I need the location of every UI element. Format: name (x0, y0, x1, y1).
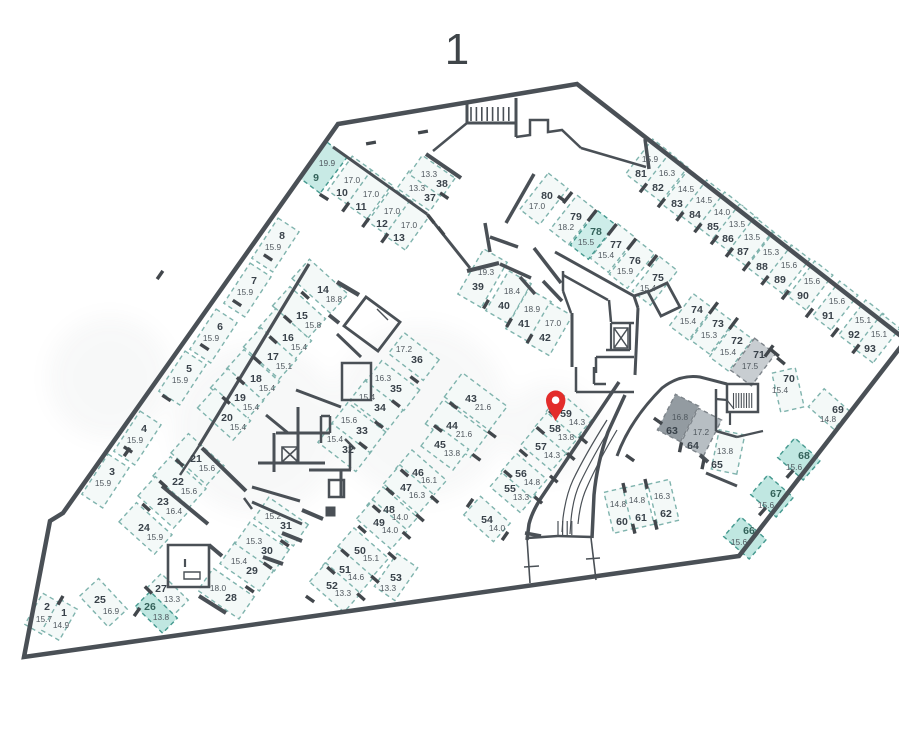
svg-text:11: 11 (355, 201, 366, 213)
svg-text:17.5: 17.5 (742, 361, 759, 371)
svg-text:16.4: 16.4 (166, 506, 183, 516)
svg-text:5: 5 (186, 363, 192, 375)
svg-text:15.6: 15.6 (781, 260, 798, 270)
svg-text:86: 86 (722, 233, 734, 245)
svg-text:82: 82 (652, 182, 664, 194)
svg-text:15.6: 15.6 (829, 296, 846, 306)
svg-text:15.6: 15.6 (181, 486, 198, 496)
svg-text:34: 34 (374, 402, 386, 414)
svg-text:15.4: 15.4 (230, 422, 247, 432)
svg-text:41: 41 (518, 318, 530, 330)
svg-text:14.5: 14.5 (696, 195, 713, 205)
svg-text:12: 12 (376, 218, 388, 230)
svg-text:13.3: 13.3 (421, 169, 438, 179)
svg-text:85: 85 (707, 221, 719, 233)
svg-text:60: 60 (616, 516, 628, 528)
svg-text:84: 84 (689, 209, 701, 221)
svg-text:39: 39 (472, 281, 484, 293)
svg-text:15.7: 15.7 (36, 614, 53, 624)
svg-text:38: 38 (436, 178, 448, 190)
svg-text:18.2: 18.2 (558, 222, 575, 232)
svg-text:1: 1 (445, 25, 469, 74)
svg-text:72: 72 (731, 335, 743, 347)
svg-text:14.8: 14.8 (629, 495, 646, 505)
svg-text:4: 4 (141, 423, 147, 435)
svg-text:15.3: 15.3 (763, 247, 780, 257)
svg-text:74: 74 (691, 304, 703, 316)
svg-text:19.3: 19.3 (478, 267, 495, 277)
svg-text:16.3: 16.3 (409, 490, 426, 500)
svg-text:15.8: 15.8 (305, 320, 322, 330)
svg-text:63: 63 (666, 425, 678, 437)
svg-text:15.9: 15.9 (265, 242, 282, 252)
svg-text:16.3: 16.3 (659, 168, 676, 178)
svg-text:17.0: 17.0 (384, 206, 401, 216)
svg-text:9: 9 (313, 172, 319, 184)
svg-text:13.3: 13.3 (335, 588, 352, 598)
svg-text:15.9: 15.9 (617, 266, 634, 276)
svg-text:62: 62 (660, 508, 672, 520)
svg-text:14.0: 14.0 (392, 512, 409, 522)
svg-text:15.4: 15.4 (720, 347, 737, 357)
svg-text:15.9: 15.9 (127, 435, 144, 445)
svg-text:42: 42 (539, 332, 551, 344)
svg-text:15.4: 15.4 (640, 283, 657, 293)
svg-text:28: 28 (225, 592, 237, 604)
svg-text:17.0: 17.0 (363, 189, 380, 199)
svg-text:81: 81 (635, 168, 647, 180)
svg-text:6: 6 (217, 321, 223, 333)
svg-text:65: 65 (711, 459, 723, 471)
svg-text:15.4: 15.4 (359, 392, 376, 402)
svg-text:83: 83 (671, 198, 683, 210)
svg-text:25: 25 (94, 594, 106, 606)
svg-text:36: 36 (411, 354, 423, 366)
svg-text:18.9: 18.9 (524, 304, 541, 314)
svg-text:17.0: 17.0 (529, 201, 546, 211)
svg-text:15.1: 15.1 (363, 553, 380, 563)
svg-text:33: 33 (356, 425, 368, 437)
svg-text:3: 3 (109, 466, 115, 478)
svg-text:13.8: 13.8 (444, 448, 461, 458)
svg-text:13.5: 13.5 (744, 232, 761, 242)
svg-text:14.0: 14.0 (714, 207, 731, 217)
svg-text:61: 61 (635, 512, 647, 524)
svg-text:16.3: 16.3 (375, 373, 392, 383)
svg-text:17.2: 17.2 (693, 427, 710, 437)
svg-text:13.3: 13.3 (409, 183, 426, 193)
svg-text:17.2: 17.2 (396, 344, 413, 354)
svg-text:13.8: 13.8 (717, 446, 734, 456)
svg-text:14.8: 14.8 (820, 414, 837, 424)
svg-text:15.4: 15.4 (327, 434, 344, 444)
svg-text:32: 32 (342, 444, 354, 456)
svg-text:15.4: 15.4 (772, 385, 789, 395)
svg-text:15.6: 15.6 (341, 415, 358, 425)
svg-text:14.8: 14.8 (610, 499, 627, 509)
svg-text:15.4: 15.4 (259, 383, 276, 393)
svg-text:16.3: 16.3 (654, 491, 671, 501)
svg-text:10: 10 (336, 187, 348, 199)
svg-text:73: 73 (712, 318, 724, 330)
svg-text:35: 35 (390, 383, 402, 395)
svg-text:67: 67 (770, 488, 782, 500)
svg-text:17.0: 17.0 (401, 220, 418, 230)
svg-text:8: 8 (279, 230, 285, 242)
svg-text:15.6: 15.6 (786, 462, 803, 472)
svg-text:13.3: 13.3 (513, 492, 530, 502)
svg-text:15.6: 15.6 (731, 537, 748, 547)
svg-text:15.2: 15.2 (265, 511, 282, 521)
svg-text:13: 13 (393, 232, 405, 244)
svg-text:87: 87 (737, 246, 749, 258)
svg-text:66: 66 (743, 525, 755, 537)
svg-text:15.9: 15.9 (172, 375, 189, 385)
svg-text:17.0: 17.0 (545, 318, 562, 328)
svg-text:15.1: 15.1 (276, 361, 293, 371)
svg-text:15.3: 15.3 (246, 536, 263, 546)
svg-text:1: 1 (61, 607, 67, 619)
svg-text:37: 37 (424, 192, 436, 204)
svg-text:2: 2 (44, 601, 50, 613)
svg-text:18.4: 18.4 (504, 286, 521, 296)
svg-text:19.9: 19.9 (319, 158, 336, 168)
svg-text:14.0: 14.0 (489, 523, 506, 533)
svg-text:92: 92 (848, 329, 860, 341)
svg-text:13.3: 13.3 (164, 594, 181, 604)
svg-text:88: 88 (756, 261, 768, 273)
svg-text:15.5: 15.5 (578, 237, 595, 247)
svg-text:21.6: 21.6 (475, 402, 492, 412)
svg-text:14.3: 14.3 (569, 417, 586, 427)
svg-text:15.9: 15.9 (203, 333, 220, 343)
svg-text:15.6: 15.6 (199, 463, 216, 473)
svg-text:15.9: 15.9 (95, 478, 112, 488)
svg-text:89: 89 (774, 274, 786, 286)
svg-text:14.5: 14.5 (678, 184, 695, 194)
svg-text:30: 30 (261, 545, 273, 557)
svg-text:15.4: 15.4 (291, 342, 308, 352)
svg-text:16.8: 16.8 (672, 412, 689, 422)
svg-text:29: 29 (246, 565, 258, 577)
svg-text:90: 90 (797, 290, 809, 302)
svg-text:15.6: 15.6 (804, 276, 821, 286)
svg-text:14.6: 14.6 (348, 572, 365, 582)
svg-text:64: 64 (687, 440, 699, 452)
svg-text:14.3: 14.3 (544, 450, 561, 460)
svg-text:71: 71 (753, 349, 765, 361)
svg-text:15.9: 15.9 (642, 154, 659, 164)
svg-text:7: 7 (251, 275, 257, 287)
svg-text:14.9: 14.9 (53, 620, 70, 630)
svg-text:15.6: 15.6 (758, 500, 775, 510)
svg-text:15.4: 15.4 (243, 402, 260, 412)
svg-text:91: 91 (822, 310, 834, 322)
svg-text:13.3: 13.3 (380, 583, 397, 593)
svg-text:18.8: 18.8 (326, 294, 343, 304)
svg-text:68: 68 (798, 450, 810, 462)
svg-text:93: 93 (864, 343, 876, 355)
svg-text:16.9: 16.9 (103, 606, 120, 616)
svg-text:21.6: 21.6 (456, 429, 473, 439)
svg-text:17.0: 17.0 (344, 175, 361, 185)
svg-text:14.0: 14.0 (382, 525, 399, 535)
svg-text:14.8: 14.8 (524, 477, 541, 487)
svg-text:13.8: 13.8 (153, 612, 170, 622)
svg-text:15.4: 15.4 (231, 556, 248, 566)
svg-text:15.4: 15.4 (598, 250, 615, 260)
svg-text:15.1: 15.1 (855, 315, 872, 325)
svg-text:15.1: 15.1 (871, 329, 888, 339)
svg-text:15.9: 15.9 (147, 532, 164, 542)
svg-text:18.0: 18.0 (210, 583, 227, 593)
svg-text:13.5: 13.5 (729, 219, 746, 229)
svg-text:15.3: 15.3 (701, 330, 718, 340)
svg-text:40: 40 (498, 300, 510, 312)
svg-text:15.9: 15.9 (237, 287, 254, 297)
svg-text:31: 31 (280, 520, 292, 532)
svg-text:13.8: 13.8 (558, 432, 575, 442)
svg-text:15.4: 15.4 (680, 316, 697, 326)
svg-text:16.1: 16.1 (421, 475, 438, 485)
svg-text:70: 70 (783, 373, 795, 385)
